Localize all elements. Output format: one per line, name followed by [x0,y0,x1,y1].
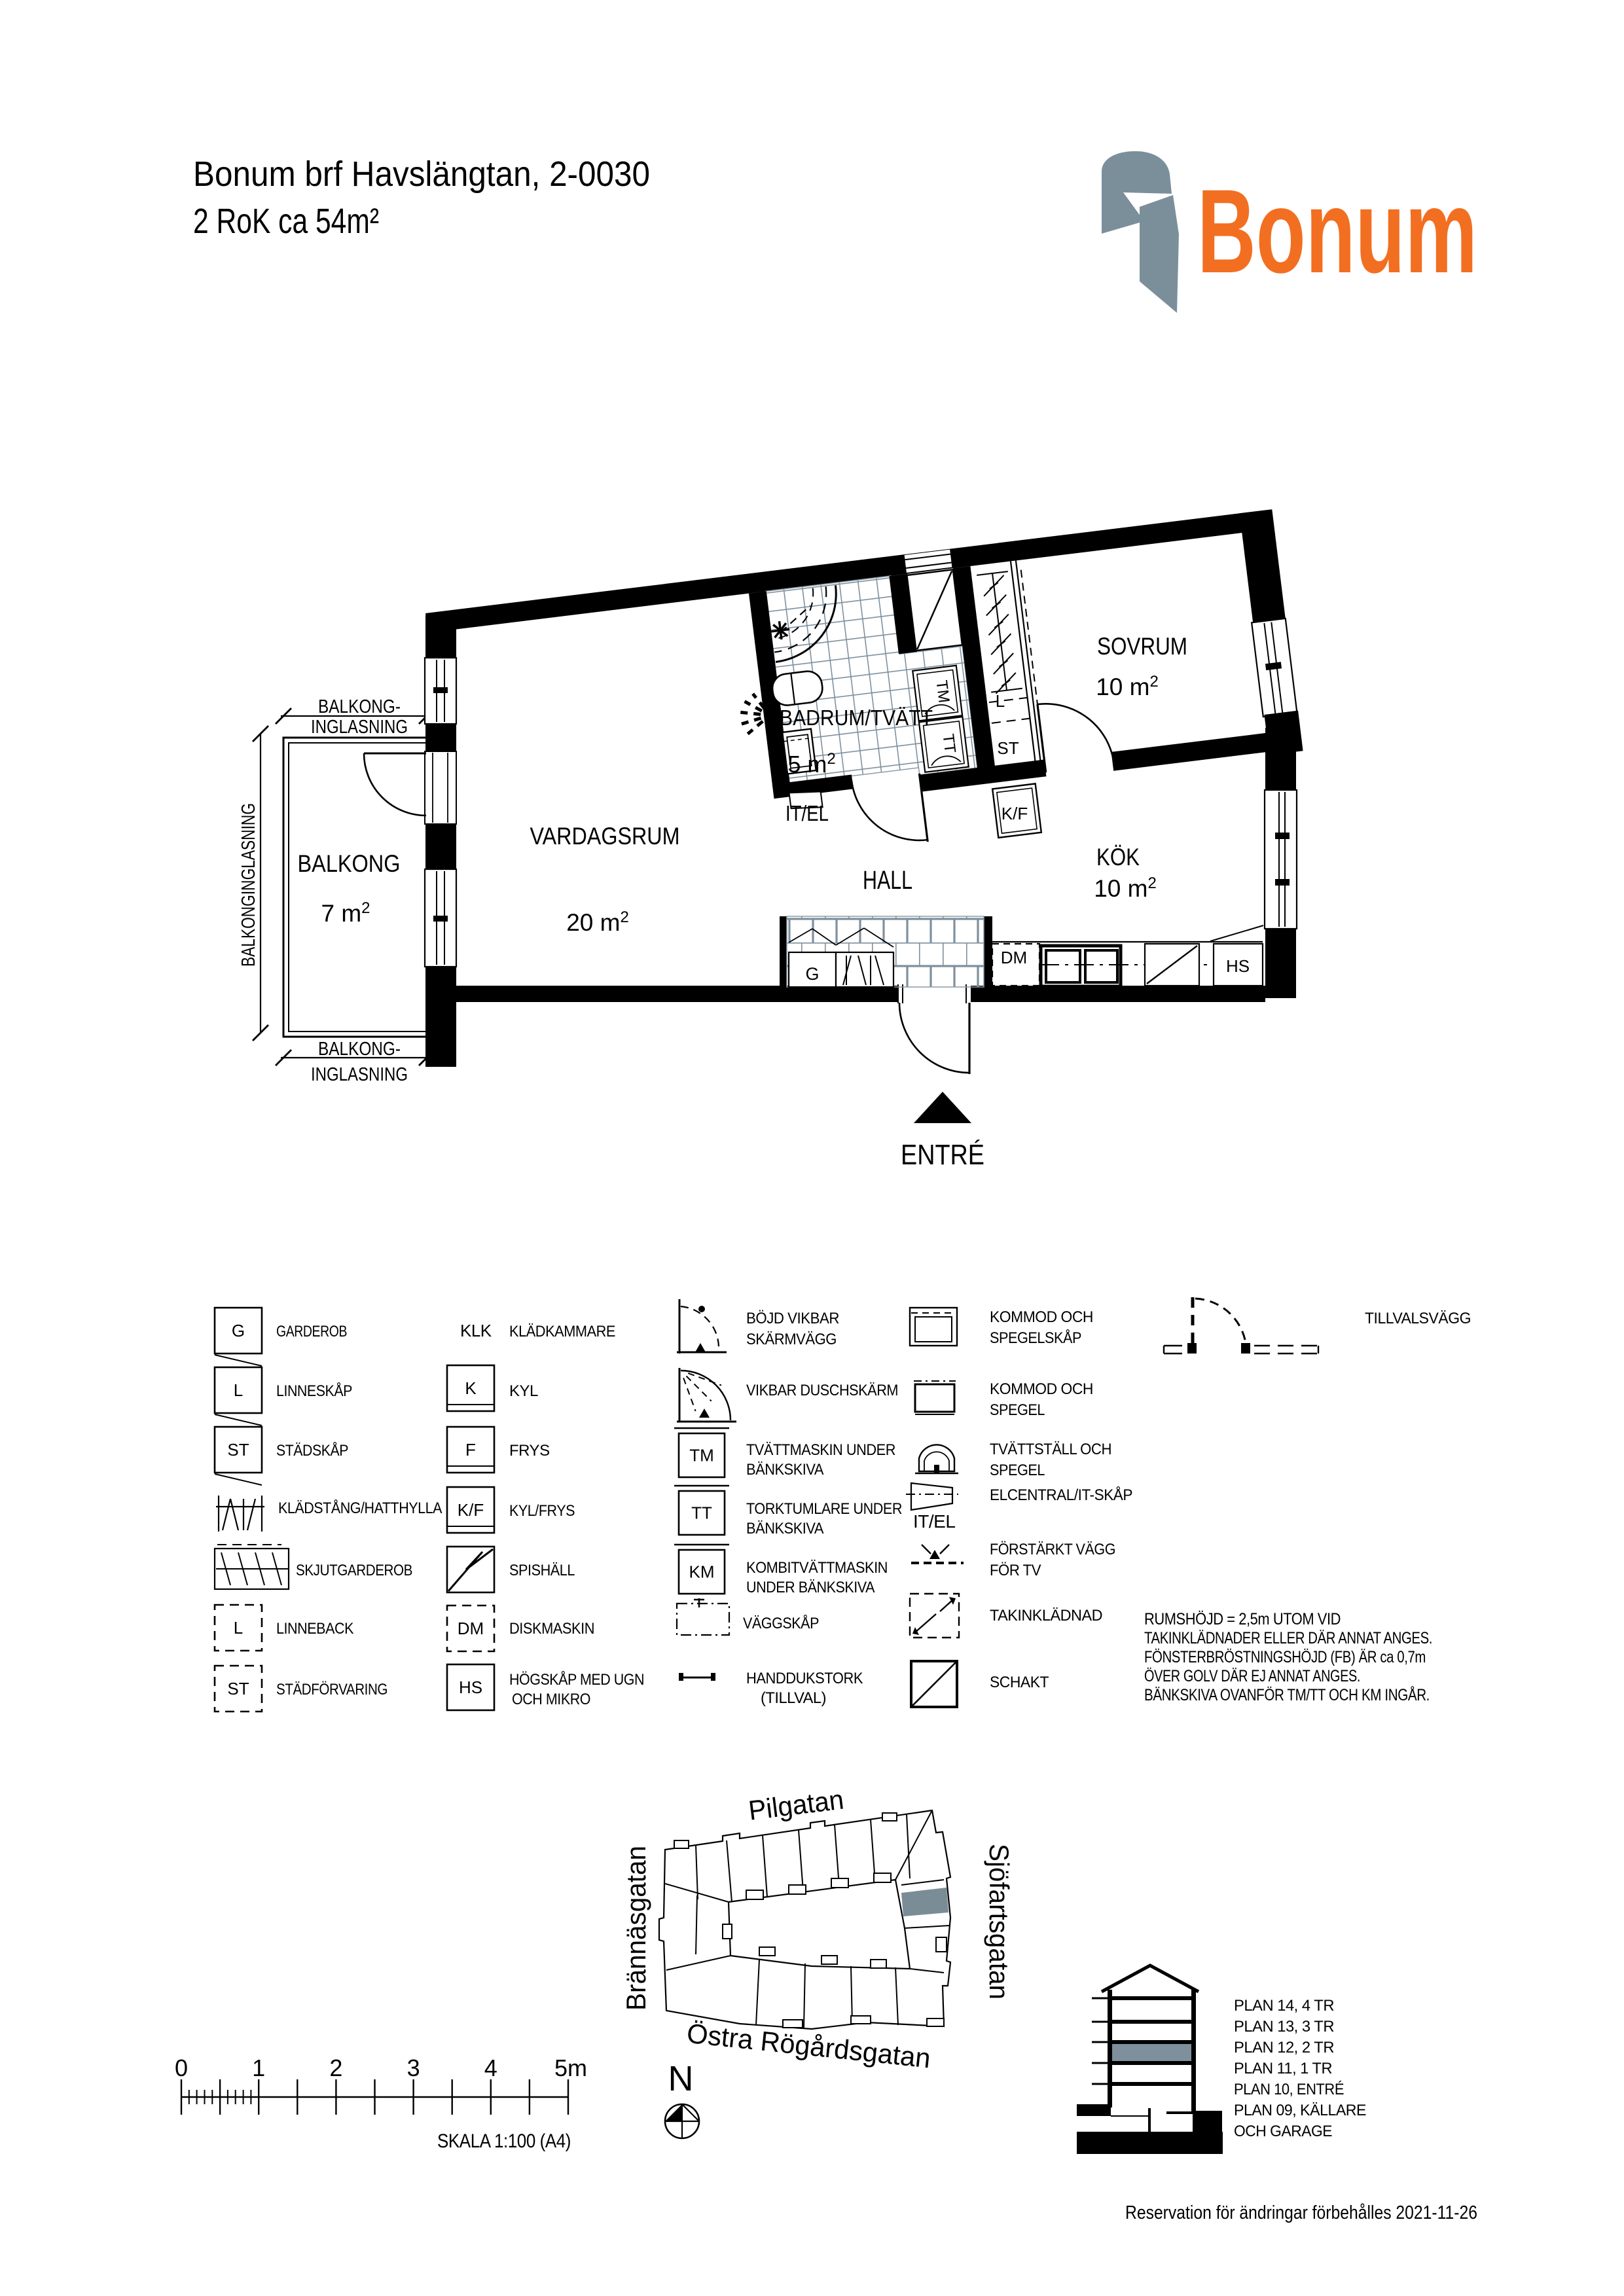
svg-text:2 RoK ca 54m²: 2 RoK ca 54m² [193,202,379,241]
svg-text:KYL/FRYS: KYL/FRYS [509,1502,575,1520]
svg-text:BÄNKSKIVA OVANFÖR TM/TT OCH KM: BÄNKSKIVA OVANFÖR TM/TT OCH KM INGÅR. [1144,1685,1430,1704]
svg-text:BÄNKSKIVA: BÄNKSKIVA [746,1461,823,1479]
svg-text:BALKONG-: BALKONG- [318,1039,401,1060]
svg-text:Sjöfartsgatan: Sjöfartsgatan [984,1844,1015,2000]
svg-text:Reservation för ändringar förb: Reservation för ändringar förbehålles 20… [1125,2202,1477,2223]
svg-text:4: 4 [484,2054,497,2081]
svg-text:PLAN 14, 4 TR: PLAN 14, 4 TR [1234,1997,1334,2015]
svg-text:PLAN 12, 2 TR: PLAN 12, 2 TR [1234,2039,1334,2056]
svg-text:BALKONGINGLASNING: BALKONGINGLASNING [238,803,259,967]
svg-text:L: L [234,1618,243,1638]
svg-text:Brännäsgatan: Brännäsgatan [621,1846,651,2011]
svg-text:TAKINKLÄDNAD: TAKINKLÄDNAD [990,1607,1102,1624]
svg-text:TT: TT [939,733,959,755]
svg-text:BALKONG-: BALKONG- [318,696,401,717]
svg-text:N: N [668,2059,694,2098]
svg-text:L: L [234,1380,243,1400]
svg-text:2: 2 [329,2054,342,2081]
svg-text:DM: DM [1001,948,1027,967]
svg-text:BÄNKSKIVA: BÄNKSKIVA [746,1520,823,1537]
svg-text:TT: TT [691,1503,712,1523]
svg-text:PLAN 09, KÄLLARE: PLAN 09, KÄLLARE [1234,2102,1366,2119]
svg-text:OCH GARAGE: OCH GARAGE [1234,2123,1332,2140]
svg-text:SKJUTGARDEROB: SKJUTGARDEROB [296,1562,412,1579]
svg-text:KOMMOD OCH: KOMMOD OCH [990,1380,1093,1398]
svg-text:SPEGEL: SPEGEL [990,1462,1045,1479]
svg-text:KOMBITVÄTTMASKIN: KOMBITVÄTTMASKIN [746,1559,888,1577]
svg-text:5m: 5m [554,2054,587,2081]
svg-text:VIKBAR DUSCHSKÄRM: VIKBAR DUSCHSKÄRM [746,1382,898,1399]
svg-text:Bonum: Bonum [1197,164,1477,298]
svg-text:FÖNSTERBRÖSTNINGSHÖJD (FB) ÄR: FÖNSTERBRÖSTNINGSHÖJD (FB) ÄR ca 0,7m [1144,1648,1426,1666]
svg-text:STÄDFÖRVARING: STÄDFÖRVARING [276,1681,388,1698]
svg-text:BADRUM/TVÄTT: BADRUM/TVÄTT [780,706,933,730]
svg-text:KOMMOD OCH: KOMMOD OCH [990,1308,1093,1326]
svg-text:0: 0 [175,2054,188,2081]
svg-text:ST: ST [227,1679,249,1698]
svg-text:HALL: HALL [863,866,912,895]
svg-text:RUMSHÖJD = 2,5m UTOM VID: RUMSHÖJD = 2,5m UTOM VID [1144,1610,1341,1628]
svg-text:20 m2: 20 m2 [566,908,629,936]
svg-text:K/F: K/F [1001,804,1028,823]
svg-text:HÖGSKÅP MED UGN: HÖGSKÅP MED UGN [509,1670,644,1689]
svg-text:G: G [805,964,819,984]
svg-text:HANDDUKSTORK: HANDDUKSTORK [746,1670,863,1687]
svg-text:VÄGGSKÅP: VÄGGSKÅP [743,1614,819,1632]
svg-text:SPEGEL: SPEGEL [990,1401,1045,1419]
svg-text:FÖRSTÄRKT VÄGG: FÖRSTÄRKT VÄGG [990,1541,1115,1558]
svg-text:F: F [465,1440,476,1460]
svg-text:STÄDSKÅP: STÄDSKÅP [276,1441,348,1460]
svg-text:BÖJD VIKBAR: BÖJD VIKBAR [746,1310,839,1327]
svg-text:3: 3 [407,2054,420,2081]
svg-text:IT/EL: IT/EL [785,801,829,825]
svg-text:1: 1 [252,2054,265,2081]
svg-text:VARDAGSRUM: VARDAGSRUM [530,823,680,850]
svg-text:PLAN 11, 1 TR: PLAN 11, 1 TR [1234,2060,1332,2077]
svg-text:PLAN 10, ENTRÉ: PLAN 10, ENTRÉ [1234,2081,1344,2098]
svg-text:SOVRUM: SOVRUM [1097,633,1187,660]
svg-text:DISKMASKIN: DISKMASKIN [509,1620,594,1638]
svg-text:PLAN 13, 3 TR: PLAN 13, 3 TR [1234,2018,1334,2036]
svg-text:TILLVALSVÄGG: TILLVALSVÄGG [1365,1310,1471,1327]
svg-text:ST: ST [227,1440,249,1460]
svg-text:FÖR TV: FÖR TV [990,1562,1041,1579]
svg-text:INGLASNING: INGLASNING [311,1064,408,1085]
svg-text:TM: TM [932,679,952,704]
svg-text:ELCENTRAL/IT-SKÅP: ELCENTRAL/IT-SKÅP [990,1486,1132,1504]
svg-text:HS: HS [459,1677,482,1697]
svg-text:SCHAKT: SCHAKT [990,1674,1049,1691]
svg-text:INGLASNING: INGLASNING [311,717,408,738]
svg-text:SPISHÄLL: SPISHÄLL [509,1562,575,1579]
svg-text:BALKONG: BALKONG [298,850,401,877]
svg-text:ÖVER GOLV DÄR EJ ANNAT ANGES.: ÖVER GOLV DÄR EJ ANNAT ANGES. [1144,1667,1360,1685]
svg-text:OCH MIKRO: OCH MIKRO [512,1691,590,1708]
svg-text:SKÄRMVÄGG: SKÄRMVÄGG [746,1331,837,1348]
svg-text:ENTRÉ: ENTRÉ [901,1139,984,1171]
svg-text:SPEGELSKÅP: SPEGELSKÅP [990,1329,1081,1347]
svg-text:K: K [465,1378,477,1398]
svg-text:KÖK: KÖK [1096,844,1140,870]
svg-text:SKALA 1:100 (A4): SKALA 1:100 (A4) [437,2130,571,2152]
svg-text:HS: HS [1226,956,1250,976]
svg-text:GARDEROB: GARDEROB [276,1323,347,1340]
svg-text:KLÄDSTÅNG/HATTHYLLA: KLÄDSTÅNG/HATTHYLLA [278,1499,442,1517]
svg-text:10 m2: 10 m2 [1096,673,1159,700]
svg-text:KLÄDKAMMARE: KLÄDKAMMARE [509,1323,615,1340]
svg-text:G: G [232,1321,245,1340]
svg-text:DM: DM [458,1619,484,1638]
svg-text:K/F: K/F [458,1500,484,1520]
svg-text:ST: ST [997,738,1019,758]
svg-text:TVÄTTSTÄLL OCH: TVÄTTSTÄLL OCH [990,1441,1111,1458]
svg-text:L: L [996,691,1005,711]
svg-text:KLK: KLK [460,1321,492,1340]
svg-text:TVÄTTMASKIN UNDER: TVÄTTMASKIN UNDER [746,1441,895,1459]
svg-text:IT/EL: IT/EL [913,1511,955,1532]
svg-text:Bonum brf Havslängtan, 2-0030: Bonum brf Havslängtan, 2-0030 [193,154,650,194]
svg-text:TAKINKLÄDNADER ELLER DÄR ANNAT: TAKINKLÄDNADER ELLER DÄR ANNAT ANGES. [1144,1629,1432,1647]
svg-text:LINNESKÅP: LINNESKÅP [276,1382,352,1400]
svg-text:UNDER BÄNKSKIVA: UNDER BÄNKSKIVA [746,1579,875,1596]
svg-text:FRYS: FRYS [509,1442,550,1460]
svg-text:10 m2: 10 m2 [1094,874,1157,902]
svg-text:(TILLVAL): (TILLVAL) [761,1689,826,1707]
svg-text:KM: KM [689,1562,715,1582]
svg-text:KYL: KYL [509,1382,538,1400]
svg-text:TORKTUMLARE UNDER: TORKTUMLARE UNDER [746,1500,902,1518]
svg-text:LINNEBACK: LINNEBACK [276,1620,353,1638]
svg-text:TM: TM [689,1446,714,1465]
